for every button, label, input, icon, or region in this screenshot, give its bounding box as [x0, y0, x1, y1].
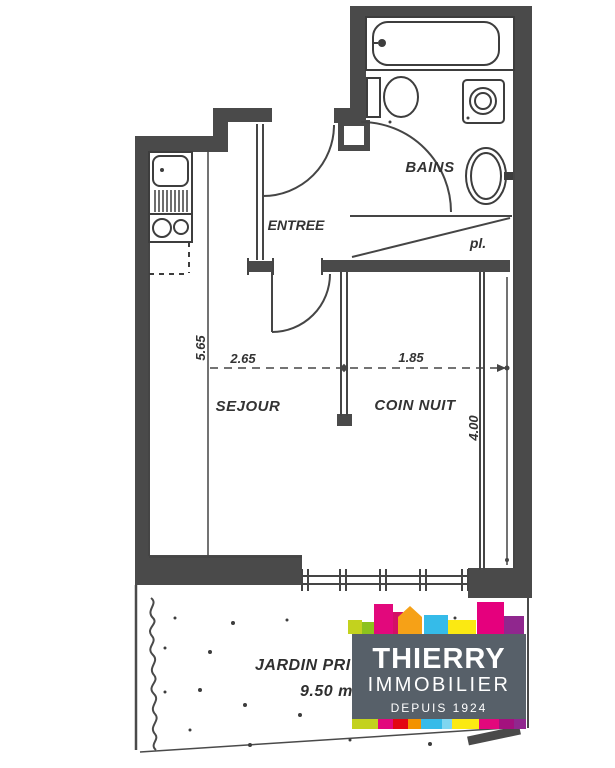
- kitchen-zone-dashed: [149, 242, 189, 274]
- logo-tagline: DEPUIS 1924: [352, 701, 526, 715]
- sink-basin: [466, 148, 513, 204]
- washing-machine: [463, 80, 504, 123]
- dim-2-65: 2.65: [229, 351, 256, 366]
- garden-wall-segment: [468, 730, 520, 741]
- entry-door-arc: [263, 125, 334, 196]
- dim-4-00: 4.00: [466, 415, 481, 442]
- house-icon: [398, 606, 422, 634]
- floorplan-page: BAINS ENTREE pl. SEJOUR COIN NUIT JARDIN…: [0, 0, 615, 768]
- window-bay: [302, 569, 468, 591]
- kitchenette: [149, 152, 192, 274]
- garden-hedge-squiggle: [150, 598, 157, 750]
- label-sejour: SEJOUR: [216, 398, 281, 415]
- burner: [153, 219, 171, 237]
- toilet: [367, 77, 418, 124]
- sejour-door-arc: [272, 274, 330, 332]
- drainer-lines: [155, 190, 187, 212]
- logo-title: THIERRY: [352, 645, 526, 674]
- closet-diagonal: [352, 218, 510, 257]
- bathtub: [366, 17, 514, 70]
- label-bains: BAINS: [405, 159, 454, 176]
- label-jardin-area: 9.50 m: [300, 683, 353, 700]
- logo-panel: THIERRY IMMOBILIER DEPUIS 1924: [352, 634, 526, 719]
- logo-skyline-icon: [348, 600, 526, 634]
- kitchen-sink: [153, 156, 188, 186]
- thin-walls: [149, 17, 514, 570]
- dim-5-65: 5.65: [193, 335, 208, 361]
- label-placard: pl.: [469, 235, 486, 251]
- burner: [174, 220, 188, 234]
- agency-logo: THIERRY IMMOBILIER DEPUIS 1924: [348, 600, 526, 729]
- logo-color-strip: [352, 719, 526, 729]
- dim-1-85: 1.85: [398, 350, 424, 365]
- label-entree: ENTREE: [268, 217, 325, 233]
- logo-subtitle: IMMOBILIER: [352, 674, 526, 697]
- label-coin-nuit: COIN NUIT: [374, 397, 457, 414]
